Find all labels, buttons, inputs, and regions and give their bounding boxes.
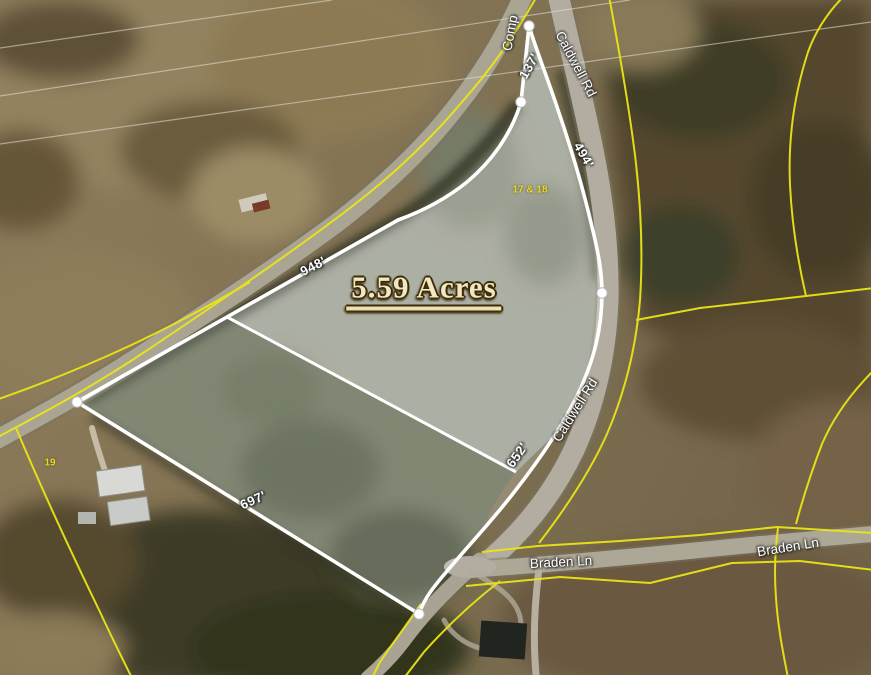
map-graphics: [0, 0, 871, 675]
building-west-shed: [78, 512, 96, 524]
building-east-dark: [479, 620, 527, 659]
aerial-parcel-map: Comp Caldwell Rd 137' 494' 17 & 18 948' …: [0, 0, 871, 675]
building-west-2: [107, 496, 150, 525]
